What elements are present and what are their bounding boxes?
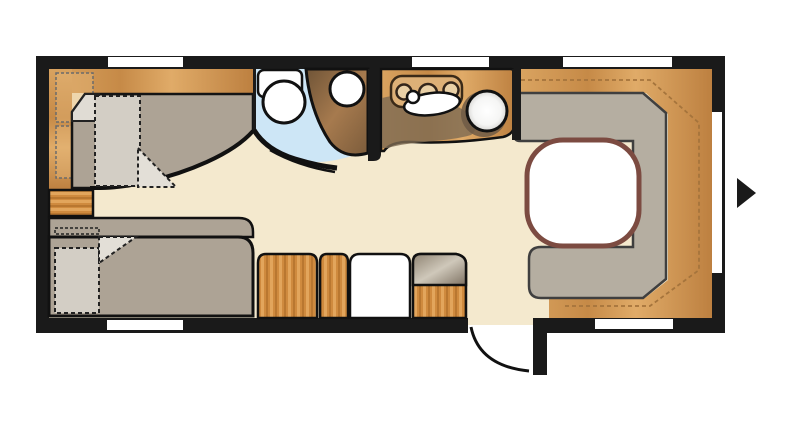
washbasin (263, 81, 305, 123)
worktop-unit-top (413, 254, 466, 285)
cabinet-2 (320, 254, 348, 318)
door-threshold (468, 316, 533, 325)
dinette (512, 69, 712, 318)
window-top-2 (412, 57, 489, 67)
sink-bowl (467, 91, 507, 131)
cabinet-1 (258, 254, 317, 318)
bathroom-kitchen-partition (368, 69, 381, 161)
window-bottom-2 (595, 319, 673, 329)
door-leaf (533, 318, 547, 375)
window-right (712, 112, 722, 273)
kitchen-dinette-partition (512, 69, 521, 140)
faucet (407, 91, 419, 103)
single-bed-top-duvet (95, 96, 140, 186)
window-top-3 (563, 57, 672, 67)
fridge (350, 254, 410, 318)
caravan-floor-plan (0, 0, 793, 437)
bedside-drawer-unit (49, 190, 93, 216)
single-bed-bottom-pillow (55, 248, 99, 313)
kitchen (381, 69, 516, 151)
single-bed-bottom-bolster (49, 218, 253, 237)
floor-plan-canvas (0, 0, 793, 437)
entry-cabinets (258, 254, 466, 318)
table (527, 140, 639, 246)
toilet (330, 72, 364, 106)
window-top-1 (108, 57, 183, 67)
window-bottom-1 (107, 320, 183, 330)
